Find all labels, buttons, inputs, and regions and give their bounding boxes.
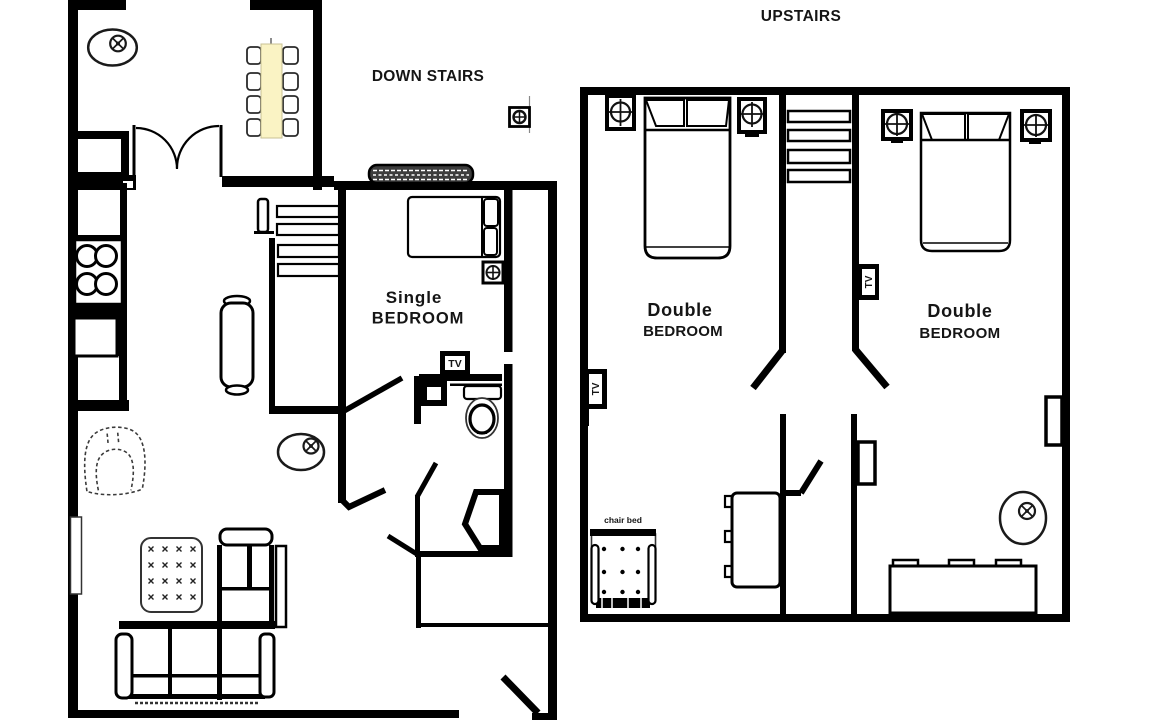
svg-text:Double: Double	[647, 300, 712, 320]
svg-text:BEDROOM: BEDROOM	[919, 325, 1000, 342]
svg-text:TV: TV	[591, 382, 602, 395]
svg-text:DOWN STAIRS: DOWN STAIRS	[372, 68, 484, 85]
svg-text:Single: Single	[386, 288, 442, 307]
svg-text:TV: TV	[864, 275, 875, 288]
svg-text:TV: TV	[448, 358, 461, 370]
svg-text:BEDROOM: BEDROOM	[643, 323, 723, 340]
svg-text:Double: Double	[927, 301, 992, 321]
svg-text:BEDROOM: BEDROOM	[372, 310, 464, 328]
svg-text:UPSTAIRS: UPSTAIRS	[761, 8, 841, 25]
svg-text:chair bed: chair bed	[604, 515, 642, 525]
